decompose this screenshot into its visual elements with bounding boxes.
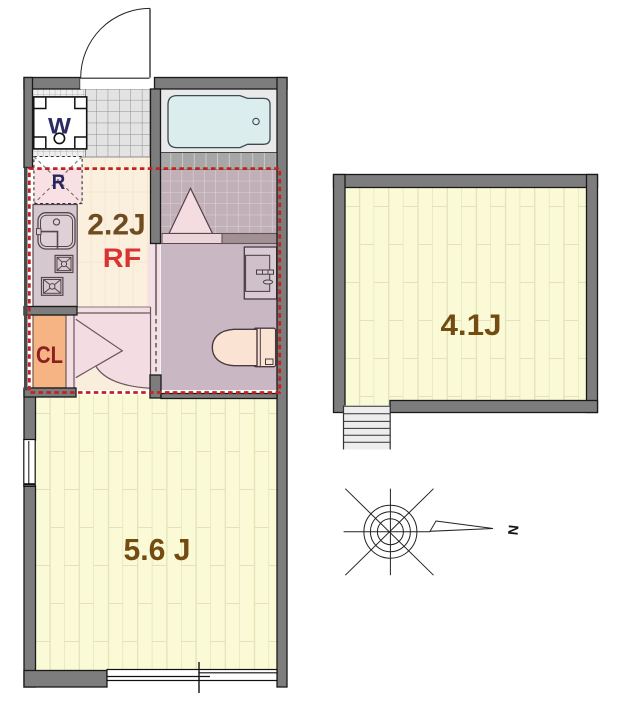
svg-text:4.1J: 4.1J (441, 309, 502, 342)
svg-text:W: W (48, 114, 71, 139)
svg-text:2.2J: 2.2J (87, 209, 146, 242)
svg-text:CL: CL (36, 342, 63, 369)
svg-text:R: R (52, 170, 66, 194)
svg-text:N: N (505, 524, 522, 536)
svg-text:5.6 J: 5.6 J (124, 532, 191, 567)
svg-text:RF: RF (103, 243, 142, 273)
